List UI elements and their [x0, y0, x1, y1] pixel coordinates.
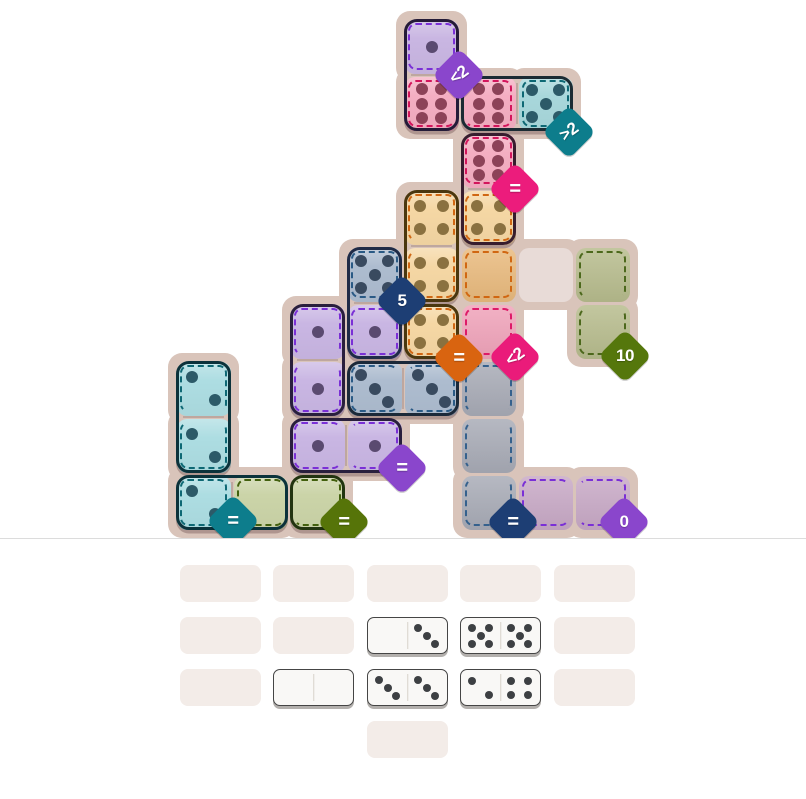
cell-pip — [414, 200, 426, 212]
cell-pip — [473, 140, 485, 152]
cell-pip — [312, 440, 324, 452]
cell-pip — [416, 83, 428, 95]
constraint-badge: 10 — [598, 329, 652, 383]
cell-pip — [473, 169, 485, 181]
tray-domino-pip — [516, 632, 524, 640]
cell-pip — [526, 111, 538, 123]
tray-domino[interactable] — [273, 669, 354, 706]
constraint-badge-label: 10 — [606, 337, 644, 375]
tray-domino-pip — [485, 691, 493, 699]
tray-domino-pip — [507, 691, 515, 699]
cell-pip — [414, 223, 426, 235]
cell-pip — [435, 112, 447, 124]
tray-slot[interactable] — [554, 617, 635, 654]
cell-pip — [426, 41, 438, 53]
tray-domino-pip — [392, 692, 400, 700]
cell-pip — [382, 396, 394, 408]
constraint-badge: = — [375, 441, 429, 495]
board-tray-divider — [0, 538, 806, 539]
tray-domino-pip — [485, 640, 493, 648]
cell-pip — [473, 155, 485, 167]
constraint-badge-label: = — [383, 449, 421, 487]
board-cell[interactable] — [462, 419, 516, 473]
tray-domino[interactable] — [367, 669, 448, 706]
tray-domino-pip — [414, 676, 422, 684]
tray-domino-divider — [500, 622, 502, 649]
tray-slot[interactable] — [273, 617, 354, 654]
board-cell[interactable] — [177, 419, 231, 473]
tray-slot[interactable] — [460, 565, 541, 602]
tray-domino[interactable] — [367, 617, 448, 654]
tray-domino-pip — [485, 624, 493, 632]
tray-domino-pip — [423, 684, 431, 692]
tray-slot[interactable] — [180, 669, 261, 706]
cell-pip — [355, 282, 367, 294]
cell-pip — [439, 396, 451, 408]
cell-pip — [437, 314, 449, 326]
tray-domino-divider — [500, 674, 502, 701]
cell-pip — [473, 98, 485, 110]
cell-pip — [426, 383, 438, 395]
tray-domino[interactable] — [460, 617, 541, 654]
cell-pip — [382, 255, 394, 267]
board-cell[interactable] — [519, 248, 573, 302]
cell-pip — [437, 257, 449, 269]
board-cell[interactable] — [462, 248, 516, 302]
constraint-badge-label: 5 — [383, 282, 421, 320]
cell-pip — [471, 223, 483, 235]
cell-pip — [312, 326, 324, 338]
tray-slot[interactable] — [554, 565, 635, 602]
cell-pip — [492, 155, 504, 167]
tray-slot[interactable] — [180, 565, 261, 602]
tray-domino-pip — [524, 624, 532, 632]
cell-pip — [414, 337, 426, 349]
tray-domino-pip — [414, 624, 422, 632]
cell-pip — [369, 383, 381, 395]
cell-pip — [553, 84, 565, 96]
constraint-badge-label: = — [496, 170, 534, 208]
constraint-badge-label: = — [214, 502, 252, 538]
constraint-badge: = — [488, 162, 542, 216]
cell-pip — [416, 98, 428, 110]
game-stage: <2>2=5=<210====0 — [0, 0, 806, 799]
cell-pip — [416, 112, 428, 124]
tray-domino-pip — [431, 640, 439, 648]
constraint-badge-label: = — [440, 339, 478, 377]
cell-pip — [414, 257, 426, 269]
tray-domino-divider — [313, 674, 315, 701]
cell-pip — [492, 98, 504, 110]
tray-slot[interactable] — [180, 617, 261, 654]
tray-domino-pip — [375, 676, 383, 684]
constraint-badge-label: = — [494, 503, 532, 538]
tray-slot[interactable] — [367, 721, 448, 758]
cell-pip — [540, 98, 552, 110]
cell-pip — [437, 200, 449, 212]
tray-domino-pip — [468, 624, 476, 632]
tray-domino-pip — [431, 692, 439, 700]
tray-domino-pip — [507, 624, 515, 632]
cell-pip — [492, 112, 504, 124]
constraint-badge-label: 0 — [605, 503, 643, 538]
tray-domino-pip — [507, 677, 515, 685]
cell-pip — [369, 269, 381, 281]
tray-domino-pip — [477, 632, 485, 640]
tray-domino-pip — [468, 677, 476, 685]
cell-pip — [186, 428, 198, 440]
cell-pip — [369, 440, 381, 452]
cell-pip — [312, 383, 324, 395]
constraint-badge: 5 — [375, 274, 429, 328]
cell-pip — [435, 98, 447, 110]
constraint-badge-label: = — [325, 503, 363, 538]
board-cell[interactable] — [405, 191, 459, 245]
tray-domino-pip — [507, 640, 515, 648]
cell-pip — [473, 112, 485, 124]
puzzle-board: <2>2=5=<210====0 — [0, 0, 806, 538]
board-cell[interactable] — [576, 248, 630, 302]
tray-domino-divider — [407, 674, 409, 701]
tray-slot[interactable] — [273, 565, 354, 602]
tray-domino-pip — [524, 691, 532, 699]
constraint-badge: = — [432, 331, 486, 385]
tray-domino-divider — [407, 622, 409, 649]
tray-domino-pip — [423, 632, 431, 640]
cell-pip — [471, 200, 483, 212]
cell-pip — [186, 485, 198, 497]
cell-pip — [186, 371, 198, 383]
tray-domino-pip — [524, 640, 532, 648]
tray-slot[interactable] — [554, 669, 635, 706]
tray-slot[interactable] — [367, 565, 448, 602]
board-cell[interactable] — [177, 362, 231, 416]
cell-pip — [369, 326, 381, 338]
tray-domino-pip — [524, 677, 532, 685]
tray-domino-pip — [384, 684, 392, 692]
tray-domino-pip — [468, 640, 476, 648]
tray-domino[interactable] — [460, 669, 541, 706]
